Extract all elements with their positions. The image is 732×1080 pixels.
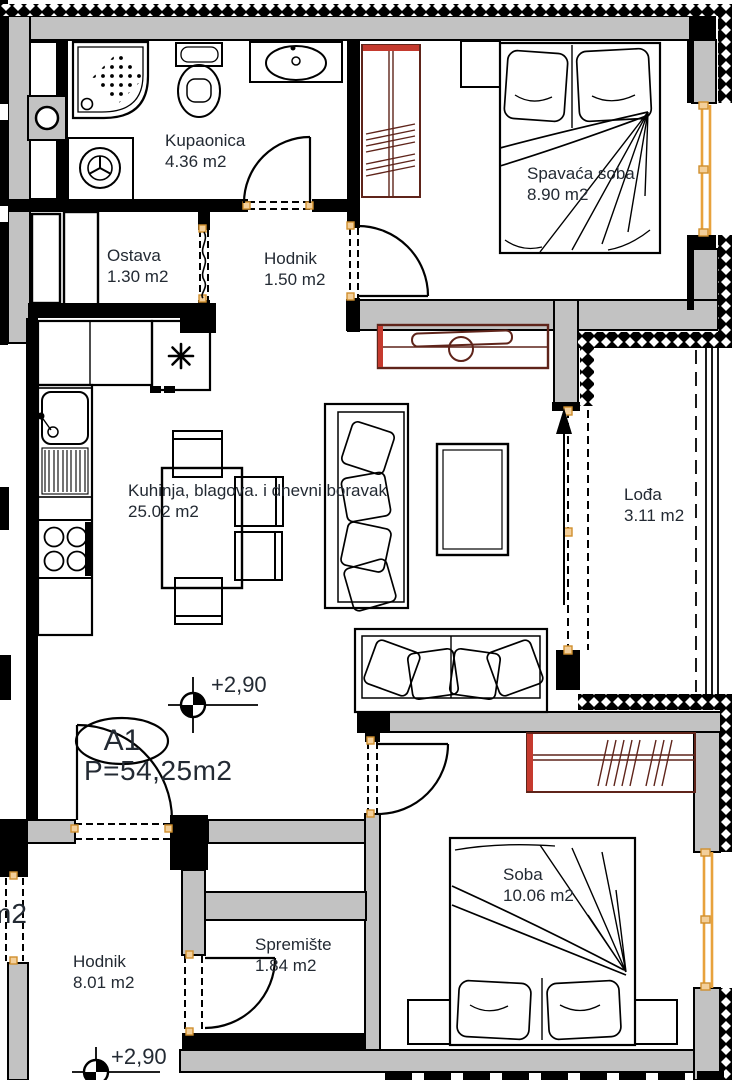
room-area: 1.50 m2	[264, 269, 325, 290]
room-area: 1.84 m2	[255, 955, 332, 976]
sink-icon	[250, 42, 342, 82]
coffee-table	[437, 444, 508, 555]
floor-plan: Kupaonica 4.36 m2 Spavaća soba 8.90 m2 O…	[0, 0, 732, 1080]
room-name: Kupaonica	[165, 130, 245, 151]
room-area: 1.30 m2	[107, 266, 168, 287]
room-area: 10.06 m2	[503, 885, 574, 906]
nightstand-left	[408, 1000, 450, 1044]
door-soba	[378, 744, 448, 814]
stove-icon	[38, 520, 92, 578]
ostava-folding-door	[202, 232, 205, 298]
loggia-railing	[696, 348, 718, 694]
room-area: 8.90 m2	[527, 184, 635, 205]
room-name: Hodnik	[73, 951, 134, 972]
washing-machine-icon	[68, 138, 133, 200]
shower-icon	[73, 42, 148, 118]
level-label-upper: +2,90	[211, 672, 267, 698]
sofa-horizontal	[355, 629, 547, 712]
room-label-kuhinja: Kuhinja, blagova. i dnevni boravak 25.02…	[128, 480, 387, 522]
shaft-upper	[30, 42, 57, 96]
kitchen-sink-icon	[38, 388, 93, 497]
room-label-spavaca-soba: Spavaća soba 8.90 m2	[527, 163, 635, 205]
nightstand-right	[635, 1000, 677, 1044]
room-label-ostava: Ostava 1.30 m2	[107, 245, 168, 287]
direction-arrow-icon	[556, 408, 572, 605]
room-name: Hodnik	[264, 248, 325, 269]
stairs	[385, 1071, 724, 1080]
counter-top	[38, 321, 152, 385]
nightstand	[461, 41, 500, 87]
furniture-bathroom	[28, 42, 342, 200]
unit-area-label: P=54,25m2	[84, 755, 233, 787]
room-name: Lođa	[624, 484, 684, 505]
room-name: Spavaća soba	[527, 163, 635, 184]
floor-plan-drawing	[0, 0, 732, 1080]
chair	[173, 431, 283, 624]
unit-code: A1	[104, 724, 141, 758]
door-bathroom	[244, 137, 310, 203]
room-name: Kuhinja, blagova. i dnevni boravak	[128, 480, 387, 501]
room-label-hodnik-gornji: Hodnik 1.50 m2	[264, 248, 325, 290]
room-name: Soba	[503, 864, 574, 885]
room-label-spremiste: Spremište 1.84 m2	[255, 934, 332, 976]
wardrobe-bedroom	[362, 45, 420, 197]
room-label-hodnik-donji: Hodnik 8.01 m2	[73, 951, 134, 993]
room-area: 4.36 m2	[165, 151, 245, 172]
door-bedroom	[358, 226, 428, 296]
room-area: 3.11 m2	[624, 505, 684, 526]
room-label-lodja: Lođa 3.11 m2	[624, 484, 684, 526]
bed-double	[500, 43, 660, 253]
furniture-ostava	[32, 212, 98, 305]
furniture-bedroom	[362, 41, 660, 253]
level-label-lower: +2,90	[111, 1044, 167, 1070]
room-area: 25.02 m2	[128, 501, 387, 522]
room-name: Ostava	[107, 245, 168, 266]
neighbor-label-fragment: m2	[0, 898, 27, 930]
shaft-vent-icon	[28, 96, 66, 140]
room-area: 8.01 m2	[73, 972, 134, 993]
toilet-icon	[176, 43, 222, 117]
furniture-dining	[162, 431, 283, 624]
wardrobe-soba	[527, 733, 695, 792]
room-label-kupaonica: Kupaonica 4.36 m2	[165, 130, 245, 172]
shaft-lower	[30, 140, 57, 199]
room-name: Spremište	[255, 934, 332, 955]
tv-stand	[378, 325, 548, 368]
room-label-soba: Soba 10.06 m2	[503, 864, 574, 906]
